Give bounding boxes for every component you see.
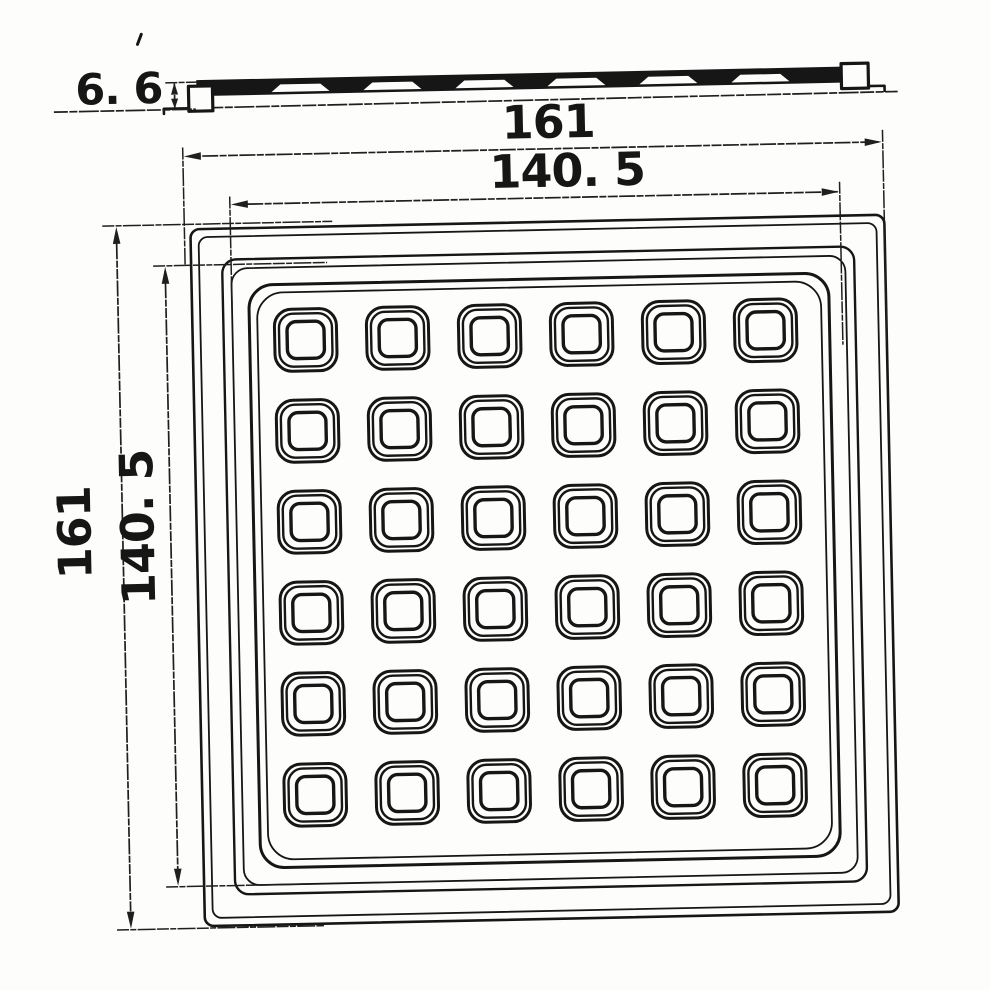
dim-label-outer-width: 161 xyxy=(501,94,595,150)
cell-ring xyxy=(480,772,518,810)
dim-161w-arrow-left xyxy=(184,152,201,160)
dim-6-6-arrow-up xyxy=(171,83,178,95)
cell-ring xyxy=(664,768,702,806)
cell-ring xyxy=(473,408,511,446)
cell-ring xyxy=(756,766,794,804)
dim-161w-ext-left xyxy=(183,147,185,264)
grid-cell xyxy=(642,301,705,364)
grid-cell xyxy=(556,575,619,638)
profile-notch xyxy=(363,81,421,90)
dim-1405w-arrow-left xyxy=(231,200,248,208)
cell-ring xyxy=(657,404,695,442)
grid-cell xyxy=(644,392,707,455)
cell-ring xyxy=(754,675,792,713)
grid-cell xyxy=(370,488,433,551)
grid-cell xyxy=(282,672,345,735)
cell-ring xyxy=(655,313,693,351)
dim-label-cavity-width: 140. 5 xyxy=(489,142,646,199)
dim-1405h-ext-top xyxy=(153,262,327,266)
cell-ring xyxy=(289,412,327,450)
profile-notch xyxy=(455,80,513,89)
grid-cell xyxy=(550,303,613,366)
grid-cell xyxy=(376,761,439,824)
grid-cell xyxy=(736,390,799,453)
grid-cell xyxy=(560,757,623,820)
dim-label-outer-height: 161 xyxy=(47,486,103,580)
grid-cell xyxy=(740,572,803,635)
plan-view xyxy=(190,215,898,926)
technical-drawing: 6. 6 161 140. 5 xyxy=(0,0,990,990)
grid-cell xyxy=(274,308,337,371)
cell-ring xyxy=(570,679,608,717)
grid-cell xyxy=(648,574,711,637)
grid-cell xyxy=(558,666,621,729)
cell-ring xyxy=(563,315,601,353)
dim-cavity-height: 140. 5 xyxy=(105,262,340,888)
grid-cell xyxy=(372,579,435,642)
cell-ring xyxy=(751,493,789,531)
cell-ring xyxy=(386,683,424,721)
grid-cell xyxy=(280,581,343,644)
cell-ring xyxy=(383,501,421,539)
dim-6-6-arrow-down xyxy=(171,99,178,109)
grid-cells xyxy=(274,299,807,827)
grid-cell xyxy=(462,486,525,549)
grid-cell xyxy=(460,395,523,458)
cell-ring xyxy=(568,588,606,626)
dim-161h-ext-top xyxy=(102,221,332,226)
grid-cell xyxy=(743,754,806,817)
profile-right-foot xyxy=(841,63,869,89)
dim-1405h-ext-bottom xyxy=(166,884,310,887)
cell-ring xyxy=(662,677,700,715)
grid-cell xyxy=(278,490,341,553)
grid-cell xyxy=(368,397,431,460)
drawing-rotated-group: 6. 6 161 140. 5 xyxy=(37,18,915,931)
cell-ring xyxy=(293,594,331,632)
cell-ring xyxy=(747,311,785,349)
grid-cell xyxy=(464,577,527,640)
cell-ring xyxy=(381,410,419,448)
cell-ring xyxy=(565,406,603,444)
dim-161h-arrow-bottom xyxy=(127,912,135,929)
dim-1405h-arrow-bottom xyxy=(174,869,182,886)
dim-label-cavity-height: 140. 5 xyxy=(109,449,166,606)
dim-161w-arrow-right xyxy=(865,138,882,146)
plan-ring xyxy=(222,246,867,894)
dim-6-6-top-tick xyxy=(165,82,197,83)
profile-notch xyxy=(731,74,789,83)
dim-161w-ext-right xyxy=(882,130,886,342)
dim-161h-arrow-top xyxy=(113,227,121,244)
grid-cell xyxy=(552,393,615,456)
cell-ring xyxy=(294,685,332,723)
grid-cell xyxy=(276,399,339,462)
cell-ring xyxy=(471,317,509,355)
grid-cell xyxy=(366,306,429,369)
profile-notch xyxy=(271,83,329,92)
grid-cell xyxy=(458,304,521,367)
grid-cell xyxy=(646,483,709,546)
grid-cell xyxy=(468,759,531,822)
cell-ring xyxy=(660,586,698,624)
cell-ring xyxy=(388,774,426,812)
grid-cell xyxy=(652,755,715,818)
cell-ring xyxy=(752,584,790,622)
grid-cell xyxy=(374,670,437,733)
dim-label-profile-height: 6. 6 xyxy=(75,64,163,116)
profile-notch xyxy=(639,76,697,85)
grid-cell xyxy=(466,668,529,731)
cell-ring xyxy=(475,499,513,537)
cell-ring xyxy=(572,770,610,808)
cell-ring xyxy=(659,495,697,533)
dim-1405w-arrow-right xyxy=(822,188,839,196)
cell-ring xyxy=(291,503,329,541)
profile-left-foot xyxy=(188,86,213,111)
cell-ring xyxy=(567,497,605,535)
grid-cell xyxy=(284,763,347,826)
cell-ring xyxy=(296,776,334,814)
profile-right-foot-tail xyxy=(869,86,885,91)
dim-1405h-line xyxy=(165,271,178,881)
cell-ring xyxy=(478,681,516,719)
grid-cell xyxy=(650,665,713,728)
scanned-drawing-page: 6. 6 161 140. 5 xyxy=(0,0,990,990)
cell-ring xyxy=(287,321,325,359)
scan-artifact xyxy=(137,34,141,44)
grid-cell xyxy=(554,484,617,547)
cell-ring xyxy=(749,402,787,440)
cell-ring xyxy=(385,592,423,630)
dim-1405h-arrow-top xyxy=(161,267,169,284)
cell-ring xyxy=(477,590,515,628)
profile-notch xyxy=(547,78,605,87)
grid-cell xyxy=(742,663,805,726)
grid-cell xyxy=(734,299,797,362)
grid-cell xyxy=(738,481,801,544)
cell-ring xyxy=(379,319,417,357)
